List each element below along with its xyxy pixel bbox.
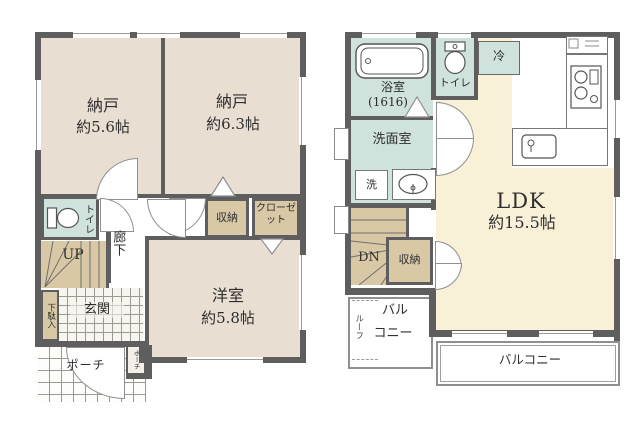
- balcony-label: バルコニー: [492, 352, 568, 368]
- entrance-label: 玄関: [70, 302, 124, 318]
- dimension-mark: [352, 359, 378, 360]
- folding-door-storage-marker: [210, 176, 236, 197]
- f2-wall-toilet-east: [474, 38, 478, 100]
- toilet-label-1f: トイレ: [81, 199, 94, 239]
- room-label-storage2-name: 納戸: [196, 92, 268, 112]
- toilet-icon-1f: [46, 203, 80, 233]
- window: [362, 31, 416, 38]
- window: [137, 31, 180, 38]
- window: [613, 100, 620, 138]
- kitchen-counter-sink: [512, 128, 608, 166]
- balcony-small-label-2: コニー: [362, 326, 424, 342]
- f2-wall-bath-east-upper: [431, 38, 436, 100]
- room-label-storage1-area: 約5.6帖: [55, 118, 151, 137]
- window: [240, 31, 287, 38]
- stove-icon: [570, 65, 602, 109]
- balcony-small-label-1: バル: [368, 303, 422, 319]
- window: [452, 331, 507, 338]
- closet-small-label: 収納: [206, 211, 248, 225]
- window: [438, 31, 471, 38]
- shoe-cabinet-label: 下駄入: [45, 293, 56, 339]
- bathtub-icon: [355, 43, 429, 79]
- bay-window: [334, 128, 349, 160]
- kitchen-counter-stove: [566, 54, 608, 130]
- closet-2f-label: 収納: [388, 253, 431, 267]
- window: [613, 197, 620, 259]
- f1-wall-porch-corner-h: [126, 373, 152, 379]
- window: [73, 31, 130, 38]
- dimension-mark: [352, 300, 378, 301]
- window: [34, 80, 41, 150]
- door-arc-western: [147, 199, 186, 238]
- refrigerator-label: 冷: [478, 49, 520, 64]
- room-label-western-name: 洋室: [192, 286, 264, 306]
- toilet-label-2f: トイレ: [435, 77, 475, 90]
- washbasin-icon: [393, 170, 434, 198]
- window: [187, 357, 263, 364]
- toilet-icon-2f: [442, 41, 468, 75]
- f2-wall-left: [345, 32, 351, 295]
- ldk-label-name: LDK: [485, 188, 557, 214]
- window: [299, 255, 306, 330]
- hallway-label: 廊下: [109, 221, 125, 265]
- ldk-label-area: 約15.5帖: [476, 213, 568, 233]
- bay-window: [334, 206, 349, 234]
- f2-wall-washroom-bottom: [351, 203, 436, 208]
- closet-label: クローゼット: [255, 203, 297, 226]
- washing-machine-box: 洗: [355, 170, 388, 200]
- cupboard-marks: [567, 37, 605, 51]
- stairs-up-label: UP: [56, 247, 90, 265]
- washing-machine-label: 洗: [366, 178, 377, 191]
- room-label-storage1-name: 納戸: [67, 96, 139, 116]
- window: [539, 331, 593, 338]
- washbasin-box: [392, 169, 436, 200]
- washroom-label: 洗面室: [354, 132, 430, 148]
- kitchen-sink-icon: [521, 134, 557, 159]
- f2-wall-bottom-stairs: [345, 288, 436, 295]
- f2-wall-connector: [429, 288, 436, 337]
- folding-door-closet-marker: [260, 238, 284, 255]
- room-label-storage2-area: 約6.3帖: [183, 115, 283, 134]
- porch-label: ポーチ: [53, 358, 119, 373]
- porch-side-label: ポーチ: [132, 347, 140, 373]
- room-label-western-area: 約5.8帖: [182, 309, 274, 328]
- floorplan-canvas: 納戸 約5.6帖 納戸 約6.3帖 収納 クローゼット 洋室 約5.8帖 トイレ…: [0, 0, 640, 426]
- kitchen-counter-upper-box: [566, 36, 608, 54]
- f2-wall-toilet-bottom: [434, 96, 478, 100]
- bath-label-size: (1616): [352, 95, 424, 110]
- f2-wall-right: [614, 32, 620, 341]
- window: [299, 77, 306, 145]
- bath-label-name: 浴室: [357, 80, 429, 95]
- stairs-down-label: DN: [352, 250, 386, 266]
